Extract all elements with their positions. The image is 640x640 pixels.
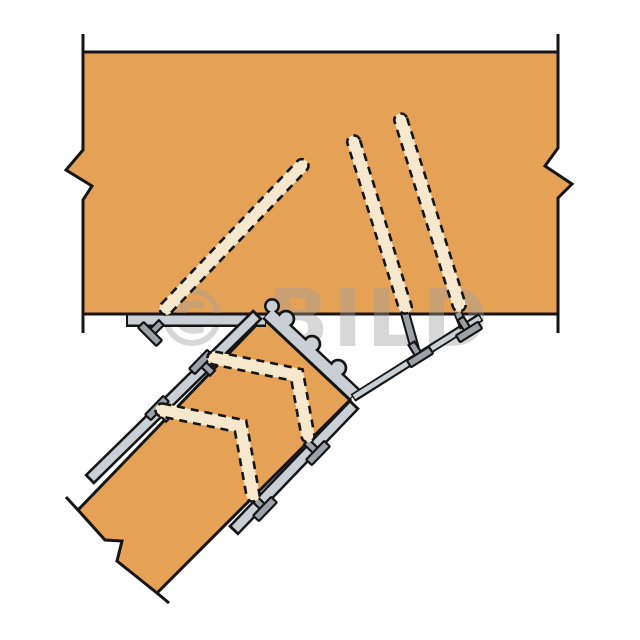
joist-break-stub-lower [157, 593, 169, 603]
joist-hanger-diagram: © BILD [0, 0, 640, 640]
illustration-canvas: © BILD [0, 0, 640, 640]
joist-break-stub-upper [66, 497, 78, 510]
